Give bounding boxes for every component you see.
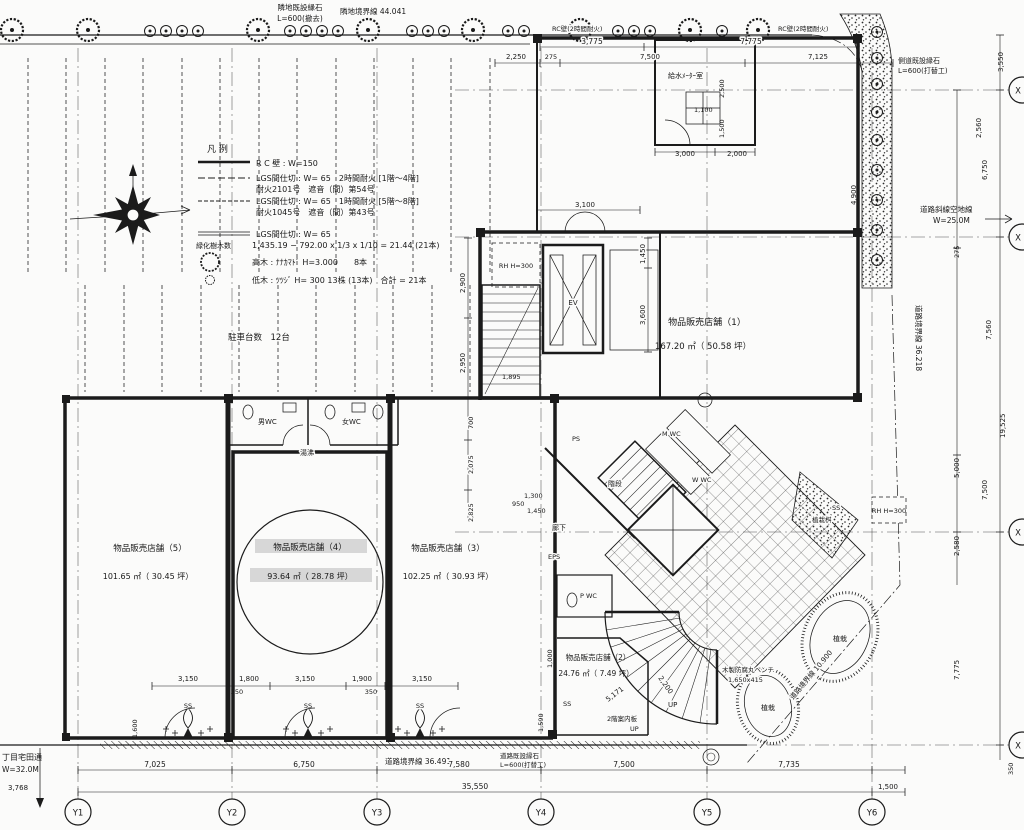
- bottom-dimensions: 7,025 6,750 7,580 7,500 7,735 35,550 1,5…: [8, 760, 905, 825]
- up-label-2: UP: [630, 725, 639, 733]
- dim: 1,000: [546, 649, 554, 668]
- dim: 3,150: [295, 675, 315, 683]
- wwc-label: W WC: [692, 476, 712, 484]
- dim: 6,750: [293, 760, 315, 769]
- dim: 2,000: [727, 150, 747, 158]
- dim: 350: [231, 688, 243, 696]
- east-curb-label2: L=600(打替工): [898, 66, 948, 75]
- dim: 5,171: [604, 685, 625, 703]
- top-dimensions: 3,775 7,775 2,250 275 7,500 7,125 3,000 …: [495, 37, 893, 214]
- dim: 1,600: [131, 719, 139, 738]
- legend-green-calc: 1,435.19 − 792.00 x 1/3 x 1/10 = 21.44 (…: [252, 240, 440, 250]
- grid-label-y3: Y3: [371, 809, 383, 819]
- grid-bubble-y5: Y5: [694, 799, 720, 825]
- south-boundary-label: 道路境界線 36.491: [385, 756, 451, 766]
- dim: 1,100: [694, 106, 713, 114]
- site-plan-svg: 隣地既設縁石 L=600(撤去) 隣地境界線 44.041 側道既設縁石 L=6…: [0, 0, 1024, 830]
- dim: 350: [365, 688, 377, 696]
- dim: 1,800: [239, 675, 259, 683]
- fire-wall-label-right: RC壁(2時間耐火): [778, 24, 828, 33]
- grid-bubble-y2: Y2: [219, 799, 245, 825]
- core-block: RH H=300 EV: [482, 212, 658, 398]
- dim: 950: [512, 500, 524, 508]
- north-compass: [70, 164, 190, 245]
- wc-men-label: 男WC: [258, 418, 277, 426]
- dim: 275: [545, 53, 557, 61]
- dim: 3,550: [997, 52, 1005, 72]
- dim: 2,900: [459, 273, 467, 293]
- south-road: 道路境界線 36.491 道路既設縁石 L=600(打替工) 丁目宅田通 W=3…: [0, 741, 747, 808]
- dim: 1,500: [878, 783, 898, 791]
- store-4-name: 物品販売店舗（4）: [273, 542, 346, 553]
- dim: 7,580: [448, 760, 470, 769]
- eps-label: EPS: [548, 553, 560, 561]
- legend-lgs2-sub: 耐火1045号 遮音（間）第43号: [256, 207, 375, 217]
- grid-bubble-x2: X: [1009, 224, 1024, 250]
- up-label-1: UP: [668, 701, 677, 709]
- dim: 2,075: [467, 455, 475, 474]
- stair-label: 階段: [608, 479, 622, 488]
- dim: 1,900: [352, 675, 372, 683]
- dim: 1,300: [524, 492, 543, 500]
- store-3-name: 物品販売店舗（3）: [411, 543, 484, 554]
- grid-bubble-y4: Y4: [528, 799, 554, 825]
- store-5-area: 101.65 ㎡（ 30.45 坪）: [103, 572, 194, 581]
- parking-area: 駐車台数 12台: [28, 58, 490, 392]
- dim: 1,450: [639, 244, 647, 264]
- legend-lgs3: LGS間仕切 : W= 65: [256, 229, 331, 239]
- grid-bubble-x4: X: [1009, 732, 1024, 758]
- legend-rc-wall: R C 壁 : W=150: [256, 158, 318, 168]
- store-1-name: 物品販売店舗（1）: [668, 316, 746, 328]
- dim: 7,025: [144, 760, 166, 769]
- store-2-area: 24.76 ㎡（ 7.49 坪）: [558, 669, 633, 678]
- east-boundary-label: 道路境界線 36.218: [914, 305, 924, 371]
- dim: 2,560: [975, 118, 983, 138]
- grid-label-x1: X: [1015, 87, 1021, 97]
- legend-lgs1: LGS間仕切 : W= 65 2時間耐火 [1階〜4階]: [256, 173, 419, 183]
- store-3: 物品販売店舗（3） 102.25 ㎡（ 30.93 坪）: [403, 543, 494, 581]
- east-setback-label: 道路斜線空地線: [920, 204, 973, 214]
- dim: 3,150: [412, 675, 432, 683]
- dim: 2,580: [953, 536, 961, 556]
- dim: 2,950: [459, 353, 467, 373]
- dim: 1,895: [502, 373, 521, 381]
- dim-total: 35,550: [462, 782, 488, 791]
- store-4-area: 93.64 ㎡（ 28.78 坪）: [267, 572, 352, 581]
- sign-2f-label: 2階案内板: [607, 714, 638, 723]
- bench-size: 1,650x415: [728, 676, 763, 684]
- roof-hatch-label-1: RH H=300: [499, 262, 533, 270]
- planter-2-label: 植栽: [761, 703, 775, 712]
- ss-label-1: SS: [832, 504, 840, 512]
- dim: 2,250: [506, 53, 526, 61]
- floor-plan-sheet: 隣地既設縁石 L=600(撤去) 隣地境界線 44.041 側道既設縁石 L=6…: [0, 0, 1024, 830]
- dim: 1,500: [718, 119, 726, 138]
- legend: 凡 例 R C 壁 : W=150 LGS間仕切 : W= 65 2時間耐火 […: [196, 143, 440, 285]
- legend-tall-tree: 高木 : ﾅﾅｶﾏﾄﾞ H=3.000 8本: [252, 257, 367, 267]
- store-3-area: 102.25 ㎡（ 30.93 坪）: [403, 572, 494, 581]
- grid-label-x3: X: [1015, 529, 1021, 539]
- north-curb-label2: L=600(撤去): [277, 13, 323, 23]
- store-5-name: 物品販売店舗（5）: [113, 543, 186, 554]
- legend-lgs1-sub: 耐火2101号 遮音（間）第54号: [256, 184, 375, 194]
- store-1-area: 167.20 ㎡（ 50.58 坪）: [655, 341, 751, 352]
- wc-women-label: 女WC: [342, 417, 361, 426]
- store-5: 物品販売店舗（5） 101.65 ㎡（ 30.45 坪）: [103, 543, 194, 581]
- dim: 6,750: [981, 160, 989, 180]
- north-curb-label: 隣地既設縁石: [278, 2, 323, 12]
- legend-green-label: 緑化樹木数: [196, 241, 231, 250]
- dim: 19,525: [999, 414, 1007, 439]
- dim: 5,000: [953, 458, 961, 478]
- grid-label-x2: X: [1015, 234, 1021, 244]
- parking-count-label: 駐車台数 12台: [228, 332, 290, 343]
- grid-bubble-y1: Y1: [65, 799, 91, 825]
- dim: 7,735: [778, 760, 800, 769]
- dim: 7,500: [981, 480, 989, 500]
- right-dimensions: 3,550 2,560 6,750 275 7,560 19,525 5,000…: [953, 35, 1024, 775]
- planter-3-label: 植栽桝: [812, 515, 832, 524]
- fire-wall-label-left: RC壁(2時間耐火): [552, 24, 602, 33]
- dim: 7,500: [640, 53, 660, 61]
- dim: 350: [1007, 763, 1015, 775]
- east-setback-width: W=25.0M: [933, 216, 970, 225]
- dim: 2,500: [718, 79, 726, 98]
- dim: 7,775: [953, 660, 961, 680]
- dim: 2,825: [467, 503, 475, 522]
- grid-bubble-y3: Y3: [364, 799, 390, 825]
- dim: 7,560: [985, 320, 993, 340]
- dim: 1,590: [537, 713, 545, 732]
- north-boundary-label: 隣地境界線 44.041: [340, 6, 406, 16]
- corridor-label: 廊下: [552, 523, 566, 532]
- dim: 7,125: [808, 53, 828, 61]
- water-meter-room: 給水ﾒｰﾀｰ室: [655, 40, 755, 145]
- grid-label-x4: X: [1015, 742, 1021, 752]
- grid-label-y4: Y4: [535, 809, 547, 819]
- grid-label-y5: Y5: [701, 809, 713, 819]
- dim: 275: [953, 246, 961, 258]
- elevator-label: EV: [568, 299, 577, 307]
- dim: 3,600: [639, 305, 647, 325]
- dim: 3,100: [575, 201, 595, 209]
- south-curb-label: 道路既設縁石: [500, 751, 540, 760]
- planter-1-label: 植栽: [833, 634, 847, 643]
- road-name-label: 丁目宅田通: [2, 752, 42, 762]
- ss-label-5: SS: [416, 702, 424, 710]
- grid-bubble-y6: Y6: [859, 799, 885, 825]
- dim: 3,000: [675, 150, 695, 158]
- grid-label-y6: Y6: [866, 809, 878, 819]
- ss-label-2: SS: [563, 700, 571, 708]
- roof-hatch-label-2: RH H=300: [872, 507, 906, 515]
- storefront: 3,150 1,800 3,150 1,900 3,150 350 350 1,…: [131, 675, 460, 738]
- east-planting-band: 側道既設縁石 L=600(打替工) 道路斜線空地線 W=25.0M 道路境界線 …: [747, 14, 1012, 763]
- ps-label: PS: [572, 435, 580, 443]
- grid-bubble-x3: X: [1009, 519, 1024, 545]
- legend-title: 凡 例: [207, 143, 228, 155]
- grid-label-y2: Y2: [226, 809, 238, 819]
- mwc-label: M WC: [662, 430, 681, 438]
- pwc-label: P WC: [580, 592, 597, 600]
- meter-room-label: 給水ﾒｰﾀｰ室: [668, 71, 703, 80]
- wc-strip: 男WC 女WC 湯沸: [228, 398, 398, 457]
- south-curb-label2: L=600(打替工): [500, 760, 546, 769]
- dim: 3,775: [581, 37, 603, 46]
- bench-label: 木製防腐丸ベンチ: [722, 665, 774, 674]
- store-4: 物品販売店舗（4） 93.64 ㎡（ 28.78 坪）: [237, 510, 383, 654]
- grid-label-y1: Y1: [72, 809, 84, 819]
- road-width-label: W=32.0M: [2, 765, 39, 774]
- legend-lgs2: LGS間仕切 : W= 65 1時間耐火 [5階〜8階]: [256, 196, 419, 206]
- grid-bubble-x1: X: [1009, 77, 1024, 103]
- dim: 3,768: [8, 784, 28, 792]
- dim: 3,150: [178, 675, 198, 683]
- hot-water-label: 湯沸: [300, 448, 314, 457]
- store-2-name: 物品販売店舗（2）: [566, 652, 631, 662]
- se-boundary-label: 道路境界線 10.900: [788, 648, 835, 701]
- dim: 7,775: [740, 37, 762, 46]
- legend-low-tree: 低木 : ﾂﾂｼﾞ H= 300 13株 (13本) 合計 = 21本: [252, 275, 427, 285]
- store-1: 物品販売店舗（1） 167.20 ㎡（ 50.58 坪）: [655, 316, 751, 352]
- dim: 7,500: [613, 760, 635, 769]
- dim: 1,450: [527, 507, 546, 515]
- dim: 700: [467, 417, 475, 429]
- east-curb-label: 側道既設縁石: [898, 56, 940, 65]
